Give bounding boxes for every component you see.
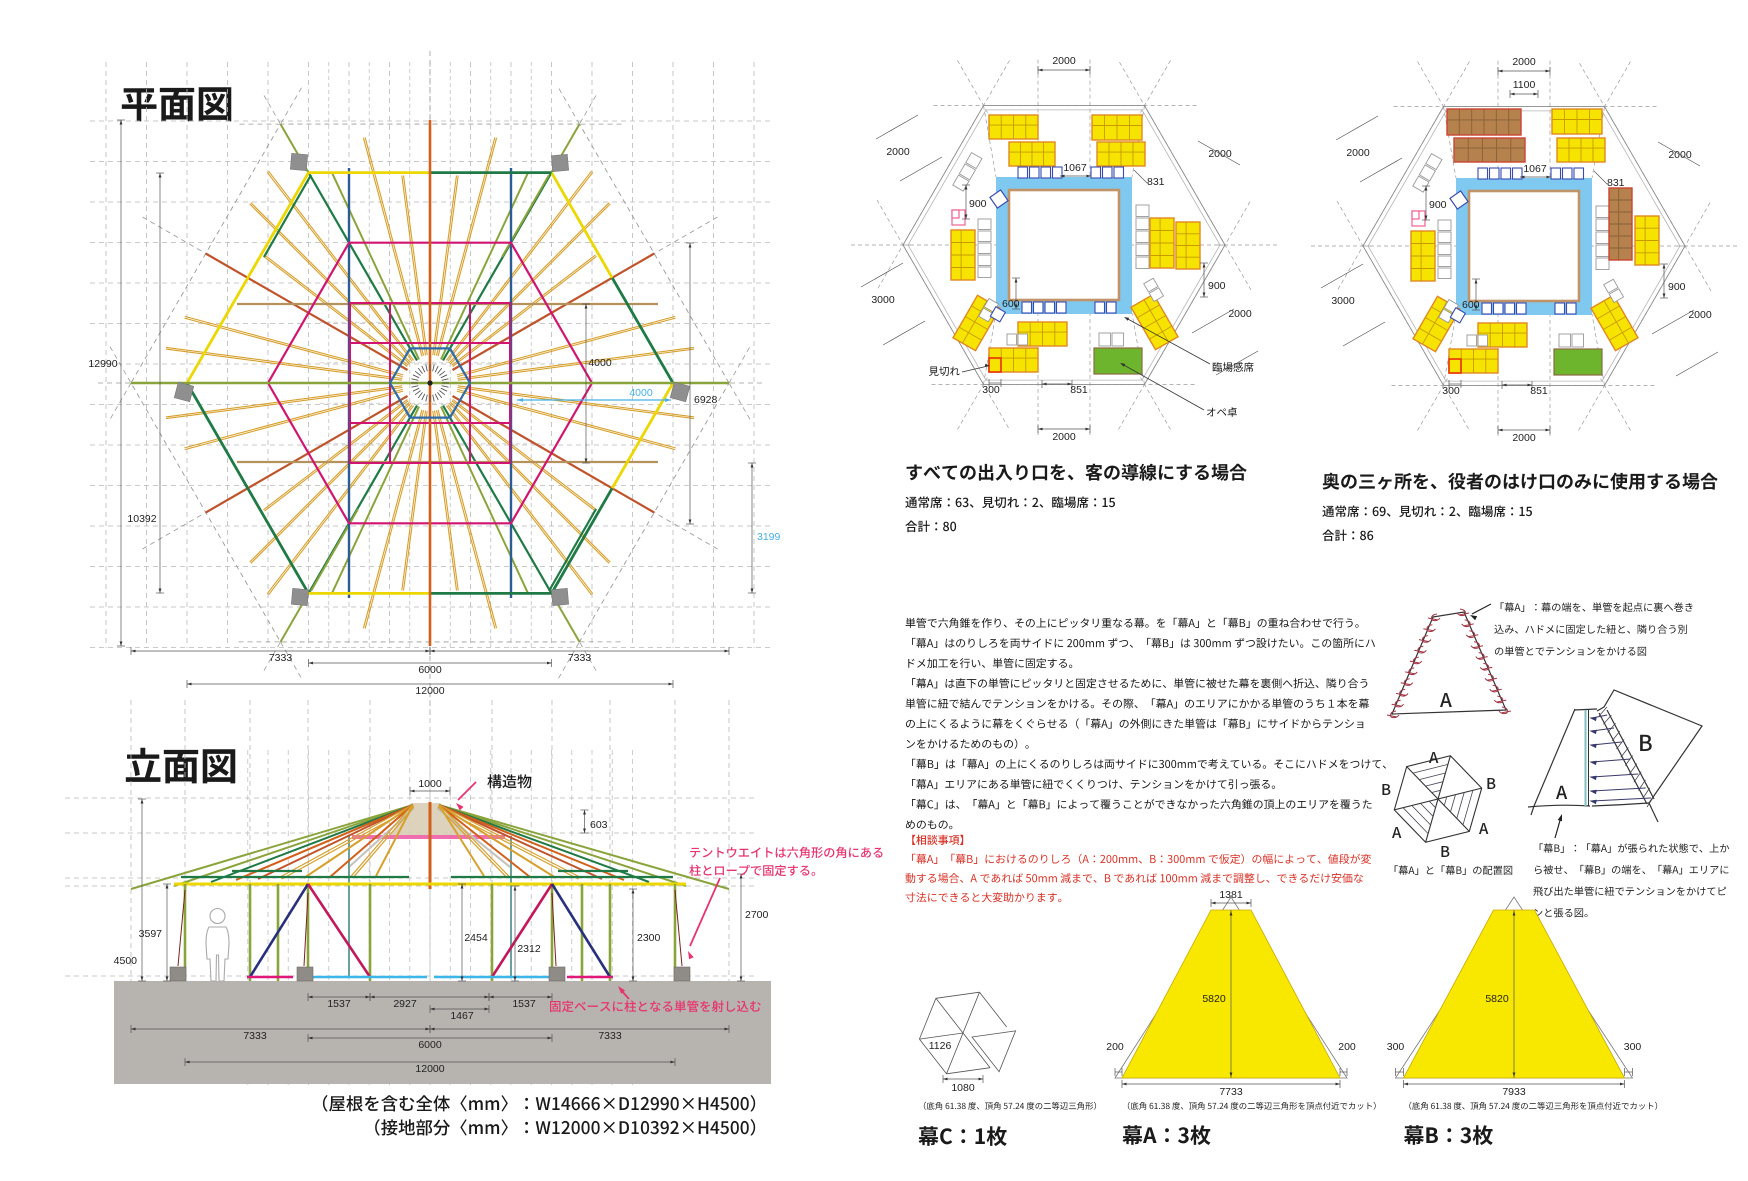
svg-text:1000: 1000 (418, 778, 442, 790)
svg-text:1467: 1467 (450, 1010, 474, 1022)
svg-text:2000: 2000 (1052, 55, 1076, 67)
svg-text:1067: 1067 (1523, 163, 1547, 175)
svg-text:2000: 2000 (1052, 431, 1076, 443)
svg-text:12000: 12000 (415, 685, 444, 697)
svg-text:2312: 2312 (517, 943, 541, 955)
svg-text:2000: 2000 (1512, 432, 1536, 444)
svg-text:2700: 2700 (745, 909, 769, 921)
svg-text:10392: 10392 (127, 513, 156, 525)
svg-text:1100: 1100 (1513, 79, 1536, 91)
svg-text:7333: 7333 (269, 652, 293, 664)
svg-text:2454: 2454 (464, 932, 488, 944)
svg-text:7733: 7733 (1219, 1086, 1243, 1098)
svg-text:600: 600 (1002, 298, 1020, 310)
svg-text:2000: 2000 (1228, 308, 1252, 320)
svg-text:300: 300 (1442, 385, 1460, 397)
svg-text:2000: 2000 (886, 146, 910, 158)
svg-text:5820: 5820 (1485, 993, 1509, 1005)
svg-text:7333: 7333 (598, 1030, 622, 1042)
svg-text:12990: 12990 (88, 358, 117, 370)
svg-text:831: 831 (1147, 176, 1165, 188)
svg-text:831: 831 (1607, 177, 1625, 189)
svg-text:2927: 2927 (393, 998, 417, 1010)
svg-text:1537: 1537 (512, 998, 536, 1010)
svg-text:12000: 12000 (415, 1063, 444, 1075)
svg-text:2000: 2000 (1688, 309, 1712, 321)
svg-text:600: 600 (1462, 299, 1480, 311)
svg-text:900: 900 (969, 198, 987, 210)
svg-text:603: 603 (590, 819, 608, 831)
svg-text:200: 200 (1106, 1041, 1124, 1053)
svg-text:300: 300 (1624, 1041, 1642, 1053)
svg-text:4000: 4000 (629, 387, 653, 399)
svg-text:4000: 4000 (588, 357, 612, 369)
svg-text:2300: 2300 (637, 932, 661, 944)
svg-text:6000: 6000 (418, 1039, 442, 1051)
svg-text:851: 851 (1070, 384, 1088, 396)
svg-text:3000: 3000 (1331, 295, 1355, 307)
svg-text:7333: 7333 (568, 652, 592, 664)
svg-text:5820: 5820 (1202, 993, 1226, 1005)
svg-text:300: 300 (1387, 1041, 1405, 1053)
svg-text:4500: 4500 (114, 955, 138, 967)
svg-text:1381: 1381 (1219, 889, 1243, 901)
svg-text:851: 851 (1530, 385, 1548, 397)
svg-text:2000: 2000 (1346, 147, 1370, 159)
svg-text:900: 900 (1668, 281, 1686, 293)
svg-text:1067: 1067 (1063, 162, 1087, 174)
svg-text:2000: 2000 (1512, 56, 1536, 68)
svg-text:6928: 6928 (694, 394, 718, 406)
svg-text:1126: 1126 (929, 1040, 952, 1052)
svg-text:1537: 1537 (327, 998, 351, 1010)
svg-text:7933: 7933 (1502, 1086, 1526, 1098)
svg-text:3199: 3199 (757, 531, 781, 543)
svg-text:900: 900 (1208, 280, 1226, 292)
svg-text:900: 900 (1429, 199, 1447, 211)
svg-text:300: 300 (982, 384, 1000, 396)
svg-text:200: 200 (1338, 1041, 1356, 1053)
svg-text:6000: 6000 (418, 664, 442, 676)
svg-text:7333: 7333 (243, 1030, 267, 1042)
svg-text:1080: 1080 (951, 1082, 975, 1094)
svg-text:3000: 3000 (871, 294, 895, 306)
